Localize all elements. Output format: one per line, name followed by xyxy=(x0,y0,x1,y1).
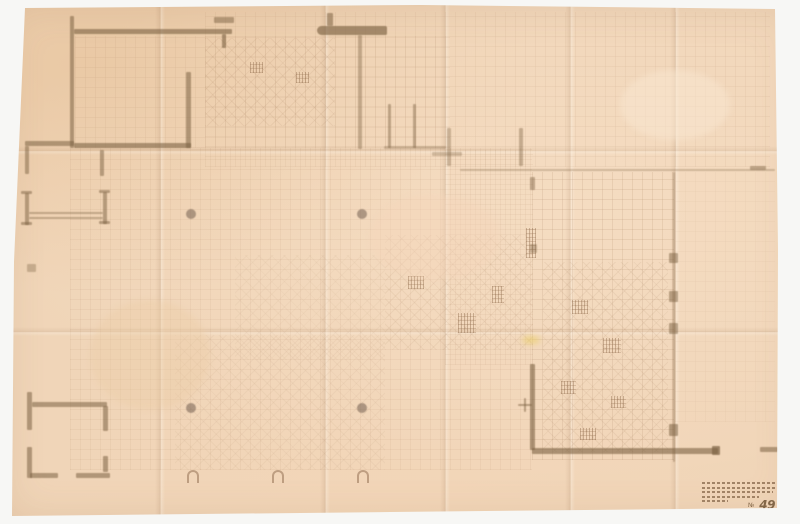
title-block-text-line xyxy=(702,482,776,484)
wall-segment xyxy=(186,72,191,148)
sheet-number-prefix: № xyxy=(748,502,754,509)
wall-segment xyxy=(30,473,58,478)
wall-segment xyxy=(530,244,537,253)
column-dot xyxy=(357,209,367,219)
shaded-tile xyxy=(561,381,576,394)
wall-segment xyxy=(358,35,362,149)
wall-segment xyxy=(532,448,718,454)
paper-stain xyxy=(522,336,540,344)
wall-segment xyxy=(524,398,526,412)
wall-segment xyxy=(750,166,766,170)
wall-segment xyxy=(384,146,446,149)
wall-segment xyxy=(530,177,535,190)
column-dot xyxy=(186,209,196,219)
door-arch-mark xyxy=(272,470,284,483)
title-block: № 49 xyxy=(702,482,778,511)
scanned-drawing-photo: № 49 xyxy=(0,0,800,524)
wall-segment xyxy=(32,402,107,407)
shaded-tile xyxy=(580,428,596,440)
wall-segment xyxy=(76,473,110,478)
wall-segment xyxy=(432,152,462,156)
title-block-text-line xyxy=(702,500,728,502)
wall-segment xyxy=(519,128,523,166)
shaded-tile xyxy=(492,286,504,303)
wall-segment xyxy=(413,104,416,148)
shaded-tile xyxy=(572,300,588,314)
wall-segment xyxy=(388,104,391,148)
sheet-number: № 49 xyxy=(748,496,775,512)
plan-layer xyxy=(0,0,800,524)
drawing-sheet: № 49 xyxy=(0,0,800,524)
wall-segment xyxy=(74,29,232,34)
shaded-tile xyxy=(458,313,476,333)
wall-segment xyxy=(99,190,110,193)
wall-segment xyxy=(669,253,678,263)
wall-segment xyxy=(103,192,107,224)
title-block-text-line xyxy=(702,487,775,489)
wall-segment xyxy=(70,16,74,148)
wall-segment xyxy=(669,424,678,436)
wall-segment xyxy=(712,446,720,455)
wall-segment xyxy=(21,222,32,225)
wall-segment xyxy=(222,34,226,48)
wall-segment xyxy=(27,392,32,430)
paper-stain xyxy=(90,300,210,410)
wall-segment xyxy=(460,169,775,171)
wall-segment xyxy=(669,291,678,302)
wall-segment xyxy=(317,26,387,35)
wall-segment xyxy=(25,146,29,174)
wall-segment xyxy=(25,193,29,225)
wall-segment xyxy=(99,221,110,224)
title-block-text-line xyxy=(702,491,773,493)
shaded-tile xyxy=(296,72,309,83)
paper-stain xyxy=(370,195,500,280)
paper-stain xyxy=(620,70,730,140)
wall-segment xyxy=(530,364,535,450)
shaded-tile xyxy=(250,62,263,73)
wall-segment xyxy=(103,456,108,472)
shaded-tile xyxy=(611,396,626,408)
shaded-tile xyxy=(526,228,536,258)
diagonal-hatch-patch xyxy=(235,255,385,360)
wall-segment xyxy=(25,141,74,146)
wall-segment xyxy=(760,447,778,452)
wall-segment xyxy=(669,323,678,334)
door-arch-mark xyxy=(357,470,369,483)
wall-segment xyxy=(27,264,36,272)
wall-segment xyxy=(447,128,451,166)
diagonal-hatch-patch xyxy=(205,38,335,126)
column-dot xyxy=(186,403,196,413)
shaded-tile xyxy=(603,338,621,353)
pencil-grid-patch xyxy=(675,172,775,422)
door-arch-mark xyxy=(187,470,199,483)
wall-segment xyxy=(214,17,234,23)
wall-segment xyxy=(21,191,32,194)
column-dot xyxy=(357,403,367,413)
wall-segment xyxy=(100,150,104,176)
diagonal-hatch-patch xyxy=(543,262,668,452)
sheet-number-value: 49 xyxy=(759,498,775,512)
wall-segment xyxy=(327,13,333,26)
wall-segment xyxy=(673,172,675,462)
wall-segment xyxy=(29,217,103,219)
wall-segment xyxy=(103,406,108,431)
wall-segment xyxy=(29,212,103,214)
wall-segment xyxy=(74,143,191,148)
